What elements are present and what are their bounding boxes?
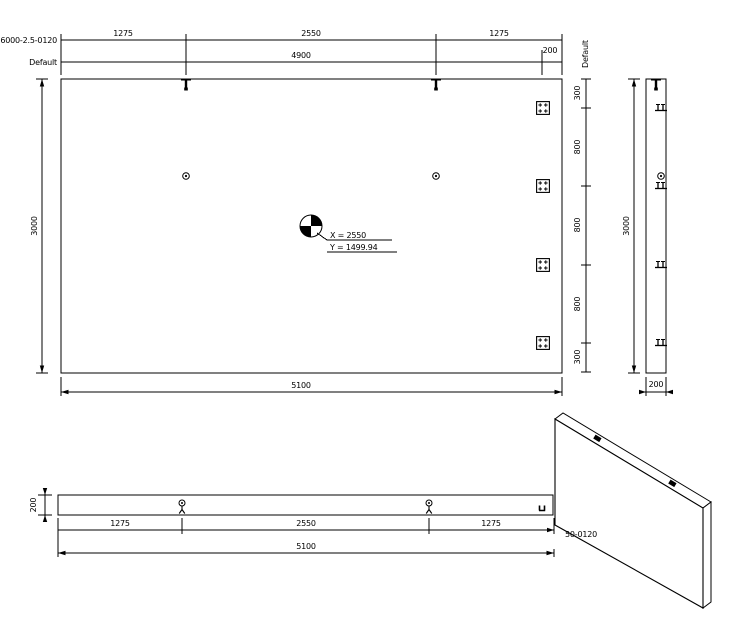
front-chain-dimension[interactable]: 1275 2550 1275 [58,518,554,557]
lifting-anchor-icon[interactable] [433,173,440,180]
arrow-right [555,390,563,394]
dim-top-left: 1275 [113,29,133,38]
plan-top-dimensions[interactable]: 6000-2.5-0120 1275 2550 1275 Default 490… [0,29,562,75]
front-width-dimension[interactable]: 5100 [58,542,554,557]
dim-200-side: 200 [649,380,664,389]
dim-200-front: 200 [29,498,38,513]
lifting-anchor-icon[interactable] [183,173,190,180]
arrow-right [547,551,555,555]
arrow-up [632,79,636,87]
dim-top-mid: 2550 [301,29,321,38]
lifting-anchor-icon[interactable] [658,173,665,180]
plan-bottom-dimension[interactable]: 5100 [61,377,562,396]
extension-lines [61,377,562,396]
dim-right-300a: 300 [573,86,582,101]
side-panel-outline[interactable] [646,79,666,373]
arrow-right [666,390,673,394]
mount-plate-icon[interactable] [537,102,550,115]
arrow-right [547,528,554,532]
dim-front-left: 1275 [110,519,130,528]
arrow-down [43,515,47,522]
mount-plate-icon[interactable] [537,337,550,350]
dim-5100-front: 5100 [296,542,316,551]
arrow-left [58,551,66,555]
chain-row-label: 6000-2.5-0120 [0,36,57,45]
arrow-down [632,366,636,374]
arrow-up [40,79,44,87]
cog-y-value: Y = 1499.94 [329,243,378,252]
dim-5100-plan: 5100 [291,381,311,390]
iso-view[interactable]: 50-0120 [555,413,711,608]
dim-right-800c: 800 [573,297,582,312]
dim-top-right: 1275 [489,29,509,38]
iso-part-label: 50-0120 [565,530,597,539]
drawing-canvas: X = 2550 Y = 1499.94 6000-2.5-0120 1275 … [0,0,737,617]
dim-3000-left: 3000 [30,216,39,236]
mount-plate-icon[interactable] [537,259,550,272]
plan-right-chain[interactable]: Default 300 800 800 800 300 [573,40,591,372]
arrow-left [61,390,69,394]
side-chain-label: Default [581,40,590,68]
side-height-dimension[interactable]: 3000 [622,79,640,373]
dim-right-800a: 800 [573,140,582,155]
front-height-dimension[interactable]: 200 [29,488,52,522]
mount-plate-icon[interactable] [537,180,550,193]
side-width-dimension[interactable]: 200 [639,377,673,396]
plan-view[interactable]: X = 2550 Y = 1499.94 [61,79,562,373]
iso-front-face[interactable] [555,419,703,608]
dim-right-300b: 300 [573,350,582,365]
dim-3000-side: 3000 [622,216,631,236]
side-view[interactable] [646,79,667,373]
front-view[interactable] [58,495,553,515]
arrow-down [40,366,44,374]
dim-right-800b: 800 [573,218,582,233]
cog-x-value: X = 2550 [330,231,366,240]
dim-200-top: 200 [543,46,558,55]
arrow-up [43,488,47,495]
dim-4900: 4900 [291,51,311,60]
plan-left-dimension[interactable]: 3000 [30,79,48,373]
front-panel-outline[interactable] [58,495,553,515]
dim-front-mid: 2550 [296,519,316,528]
arrow-left [639,390,646,394]
dim-front-right: 1275 [481,519,501,528]
overall-row-label: Default [29,58,57,67]
iso-side-face[interactable] [703,502,711,608]
